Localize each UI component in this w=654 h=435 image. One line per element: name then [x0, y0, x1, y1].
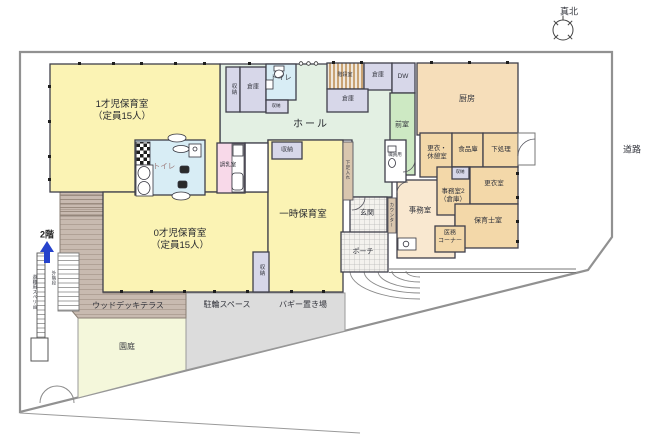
room-change-break-line1: 更衣・ [427, 145, 447, 153]
road-label: 道路 [623, 144, 641, 155]
room-food-storage-label: 食品庫 [458, 146, 478, 154]
room-dw-label: DW [398, 73, 409, 81]
room-changing-label: 更衣室 [484, 180, 504, 188]
room-souko-right-label: 倉庫 [372, 72, 384, 80]
kitchen-service-step [518, 133, 535, 165]
hall-columns [299, 62, 318, 66]
evacuation-slide-rail [37, 253, 45, 338]
room-anteroom-label: 前室 [395, 122, 409, 131]
room-class0-capacity: （定員15人） [151, 240, 209, 252]
room-class1-label: 1才児保育室 （定員15人） [93, 99, 151, 123]
room-change-break-label: 更衣・ 休憩室 [427, 145, 447, 161]
room-prep-label: 下処理 [491, 146, 511, 154]
room-class1-capacity: （定員15人） [93, 111, 151, 123]
evacuation-slide-label: 避難用スベリ台 [32, 275, 38, 310]
room-class1-name: 1才児保育室 [93, 99, 151, 111]
room-kitchen-label: 厨房 [459, 94, 475, 104]
room-temp-care-label: 一時保育室 [279, 209, 327, 221]
room-office2-line1: 事務室2 [440, 188, 466, 196]
deck-steps [60, 192, 103, 216]
closet-storage-tiny-label: 収納 [456, 169, 465, 175]
corridor-white [245, 143, 268, 192]
counter-label: カウンター [389, 203, 395, 228]
north-label: 真北 [560, 6, 578, 17]
room-milk-label: 調乳室 [220, 163, 237, 170]
room-office2-label: 事務室2 （倉庫） [440, 188, 466, 204]
room-souko-top-label: 倉庫 [247, 84, 259, 92]
room-medical-line2: コーナー [438, 238, 462, 246]
second-floor-label: 2階 [40, 229, 54, 240]
room-class0-label: 0才児保育室 （定員15人） [151, 228, 209, 252]
room-souko-lower-label: 倉庫 [342, 96, 354, 104]
room-staff-toilet-label: 職員用 [388, 152, 402, 158]
buggy-space-label: バギー置き場 [279, 300, 327, 310]
road-edge-line [20, 413, 360, 433]
closet-storage-temp-label: 収納 [281, 147, 293, 155]
room-office2-line2: （倉庫） [440, 196, 466, 204]
room-medical-corner-label: 医務 コーナー [438, 231, 462, 246]
bike-space-label: 駐輪スペース [203, 300, 250, 310]
deck-label: ウッドデッキテラス [92, 301, 164, 311]
exterior-stairs [58, 253, 79, 311]
room-hall-label: ホール [293, 119, 329, 132]
exterior-stairs-label: 外階段 [51, 271, 57, 286]
porch-label: ポーチ [353, 249, 374, 258]
floorplan-canvas: 真北 道路 1才児保育室 （定員15人） 0才児保育室 （定員15人） ホール … [0, 0, 654, 435]
room-nursery-staff-label: 保育士室 [474, 218, 502, 227]
room-office-label: 事務室 [409, 205, 432, 214]
closet-storage-small-label: 収納 [272, 103, 281, 109]
closet-storage-v-bottom-label: 収納 [258, 264, 265, 276]
slide-landing [31, 338, 48, 361]
room-medical-line1: 医務 [438, 231, 462, 239]
room-stairwell-label: 階段室 [337, 72, 352, 78]
north-compass [553, 16, 573, 41]
garden-label: 園庭 [119, 342, 135, 352]
room-toilet-top-label: トイレ [271, 75, 292, 84]
room-toilet-main-label: トイレ [153, 161, 176, 170]
entrance-label: 玄関 [360, 210, 374, 219]
closet-storage-v-top-label: 収納 [230, 83, 237, 95]
area-garden [78, 318, 186, 398]
room-change-break-line2: 休憩室 [427, 153, 447, 161]
room-class0-name: 0才児保育室 [151, 228, 209, 240]
shoe-box-label: 下足入れ [345, 160, 351, 180]
